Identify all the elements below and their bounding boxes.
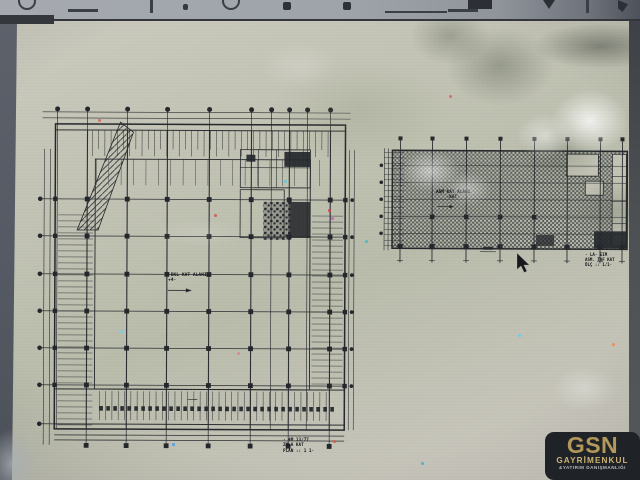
dust-speck — [120, 330, 123, 333]
dust-speck — [421, 462, 424, 465]
dust-speck — [172, 443, 175, 446]
floor-plans-drawing — [0, 20, 640, 480]
dust-speck — [518, 334, 521, 337]
bar-icon[interactable] — [150, 0, 153, 13]
mouse-cursor — [517, 253, 533, 275]
circle-icon[interactable] — [18, 0, 36, 10]
app-toolbar[interactable] — [0, 0, 640, 21]
gsn-company-text: GAYRİMENKUL — [545, 456, 640, 465]
dash-icon[interactable] — [448, 9, 478, 12]
left-plan-title-block: · 4M 13/77 ZMLA KAT PLAN :: 1 1· — [283, 438, 314, 454]
document-canvas[interactable]: ·BKL KAT ALANI· +4· · 4M 13/77 ZMLA KAT … — [0, 21, 640, 480]
dust-speck — [331, 217, 334, 220]
right-plan-center-label: ASM KAT ALANI ·KAT· — [436, 190, 470, 200]
circle-icon[interactable] — [222, 0, 240, 10]
right-plan-title-block: · LA· EIM ASM. TAF KAT ÖLÇ :: 1/1· — [585, 252, 615, 268]
gsn-logo-watermark: GSN GAYRİMENKUL &YATIRIM DANIŞMANLIĞI — [545, 432, 640, 480]
dust-speck — [333, 440, 336, 443]
blob-icon[interactable] — [343, 2, 351, 10]
left-plan-center-label: ·BKL KAT ALANI· +4· — [168, 273, 210, 283]
dust-speck — [612, 343, 615, 346]
dust-speck — [449, 95, 452, 98]
dust-speck — [328, 209, 331, 212]
right-dark-edge — [629, 21, 640, 480]
underline-icon[interactable] — [385, 11, 447, 13]
dust-speck — [237, 352, 240, 355]
gsn-subtitle-text: &YATIRIM DANIŞMANLIĞI — [545, 465, 640, 471]
blob-icon[interactable] — [283, 2, 291, 10]
gsn-brand-text: GSN — [545, 435, 640, 456]
dust-speck — [98, 119, 101, 122]
vee-icon[interactable] — [543, 0, 555, 9]
photographed-monitor-screen: ·BKL KAT ALANI· +4· · 4M 13/77 ZMLA KAT … — [0, 0, 640, 480]
dash-icon[interactable] — [68, 9, 98, 12]
dot-icon[interactable] — [183, 4, 188, 10]
rect-icon[interactable] — [468, 0, 492, 9]
toolbar-left-seam — [0, 15, 54, 24]
right-floor-plan — [379, 136, 627, 263]
dust-speck — [284, 180, 287, 183]
dust-speck — [365, 240, 368, 243]
dust-speck — [214, 214, 217, 217]
bar-icon[interactable] — [586, 0, 589, 13]
chevron-icon[interactable] — [618, 0, 628, 12]
